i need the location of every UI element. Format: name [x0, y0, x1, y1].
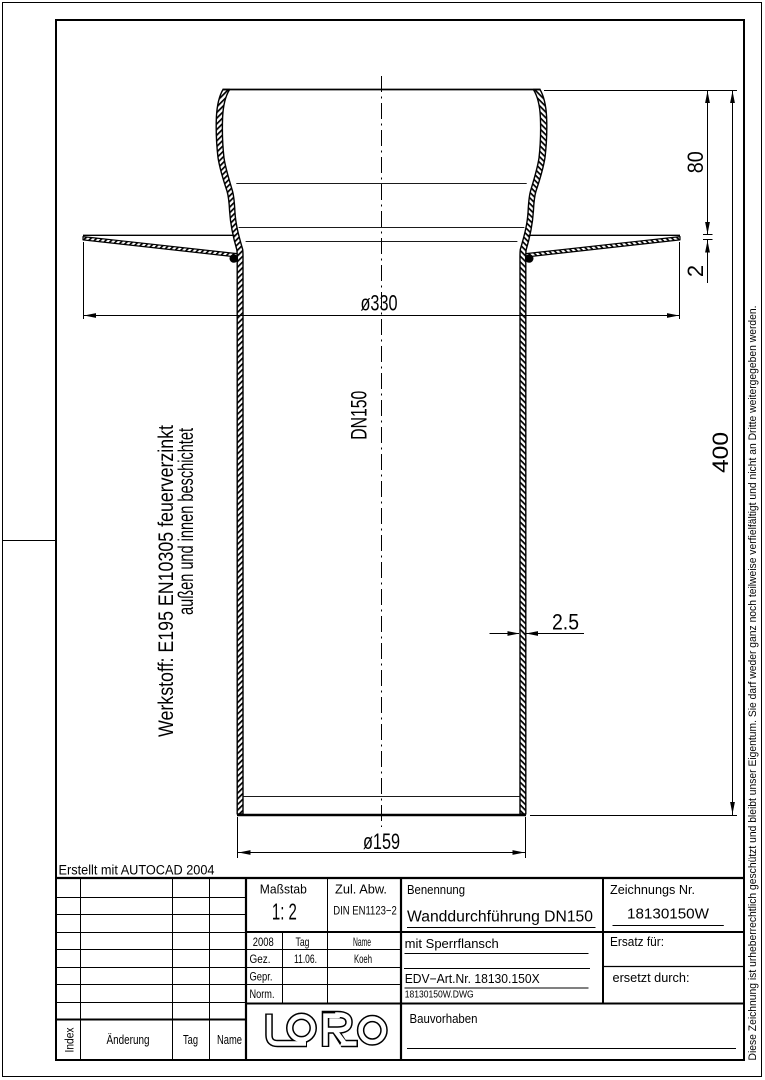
svg-text:mit Sperrflansch: mit Sperrflansch [405, 937, 499, 951]
svg-text:Tag: Tag [183, 1033, 198, 1047]
svg-text:außen und innen beschichtet: außen und innen beschichtet [175, 428, 198, 615]
svg-text:Koeh: Koeh [354, 952, 372, 966]
svg-text:Ersatz für:: Ersatz für: [610, 935, 664, 949]
svg-text:DIN EN1123−2: DIN EN1123−2 [333, 903, 397, 917]
svg-text:Index: Index [65, 1027, 77, 1052]
svg-text:Maßstab: Maßstab [260, 883, 307, 897]
svg-text:Zul. Abw.: Zul. Abw. [335, 883, 387, 897]
svg-text:1: 2: 1: 2 [272, 898, 297, 924]
svg-text:Diese Zeichnung ist urheberrec: Diese Zeichnung ist urheberrechtlich ges… [747, 306, 759, 1061]
svg-text:Zeichnungs Nr.: Zeichnungs Nr. [610, 883, 695, 897]
svg-text:Gez.: Gez. [250, 952, 271, 966]
svg-text:18130150W.DWG: 18130150W.DWG [405, 989, 474, 1001]
svg-text:EDV−Art.Nr. 18130.150X: EDV−Art.Nr. 18130.150X [405, 972, 541, 986]
svg-text:Erstellt mit AUTOCAD 2004: Erstellt mit AUTOCAD 2004 [59, 863, 215, 878]
svg-text:Name: Name [353, 935, 371, 949]
svg-text:400: 400 [708, 432, 733, 473]
svg-text:Norm.: Norm. [250, 987, 275, 1001]
svg-text:Wanddurchführung DN150: Wanddurchführung DN150 [407, 909, 593, 926]
svg-text:ø159: ø159 [363, 829, 400, 854]
svg-text:Name: Name [217, 1033, 242, 1047]
svg-text:2.5: 2.5 [552, 610, 579, 635]
svg-text:2008: 2008 [253, 935, 274, 949]
svg-text:Benennung: Benennung [407, 883, 465, 897]
svg-text:ø330: ø330 [361, 291, 398, 316]
svg-text:DN150: DN150 [347, 391, 372, 440]
svg-text:80: 80 [683, 151, 708, 173]
svg-text:18130150W: 18130150W [627, 906, 710, 923]
svg-text:ersetzt durch:: ersetzt durch: [613, 971, 690, 985]
svg-text:Änderung: Änderung [107, 1033, 150, 1047]
svg-text:Gepr.: Gepr. [250, 970, 273, 984]
svg-text:11.06.: 11.06. [294, 952, 317, 966]
svg-text:2: 2 [683, 265, 708, 277]
svg-text:Tag: Tag [296, 935, 310, 949]
svg-text:Bauvorhaben: Bauvorhaben [410, 1012, 478, 1026]
